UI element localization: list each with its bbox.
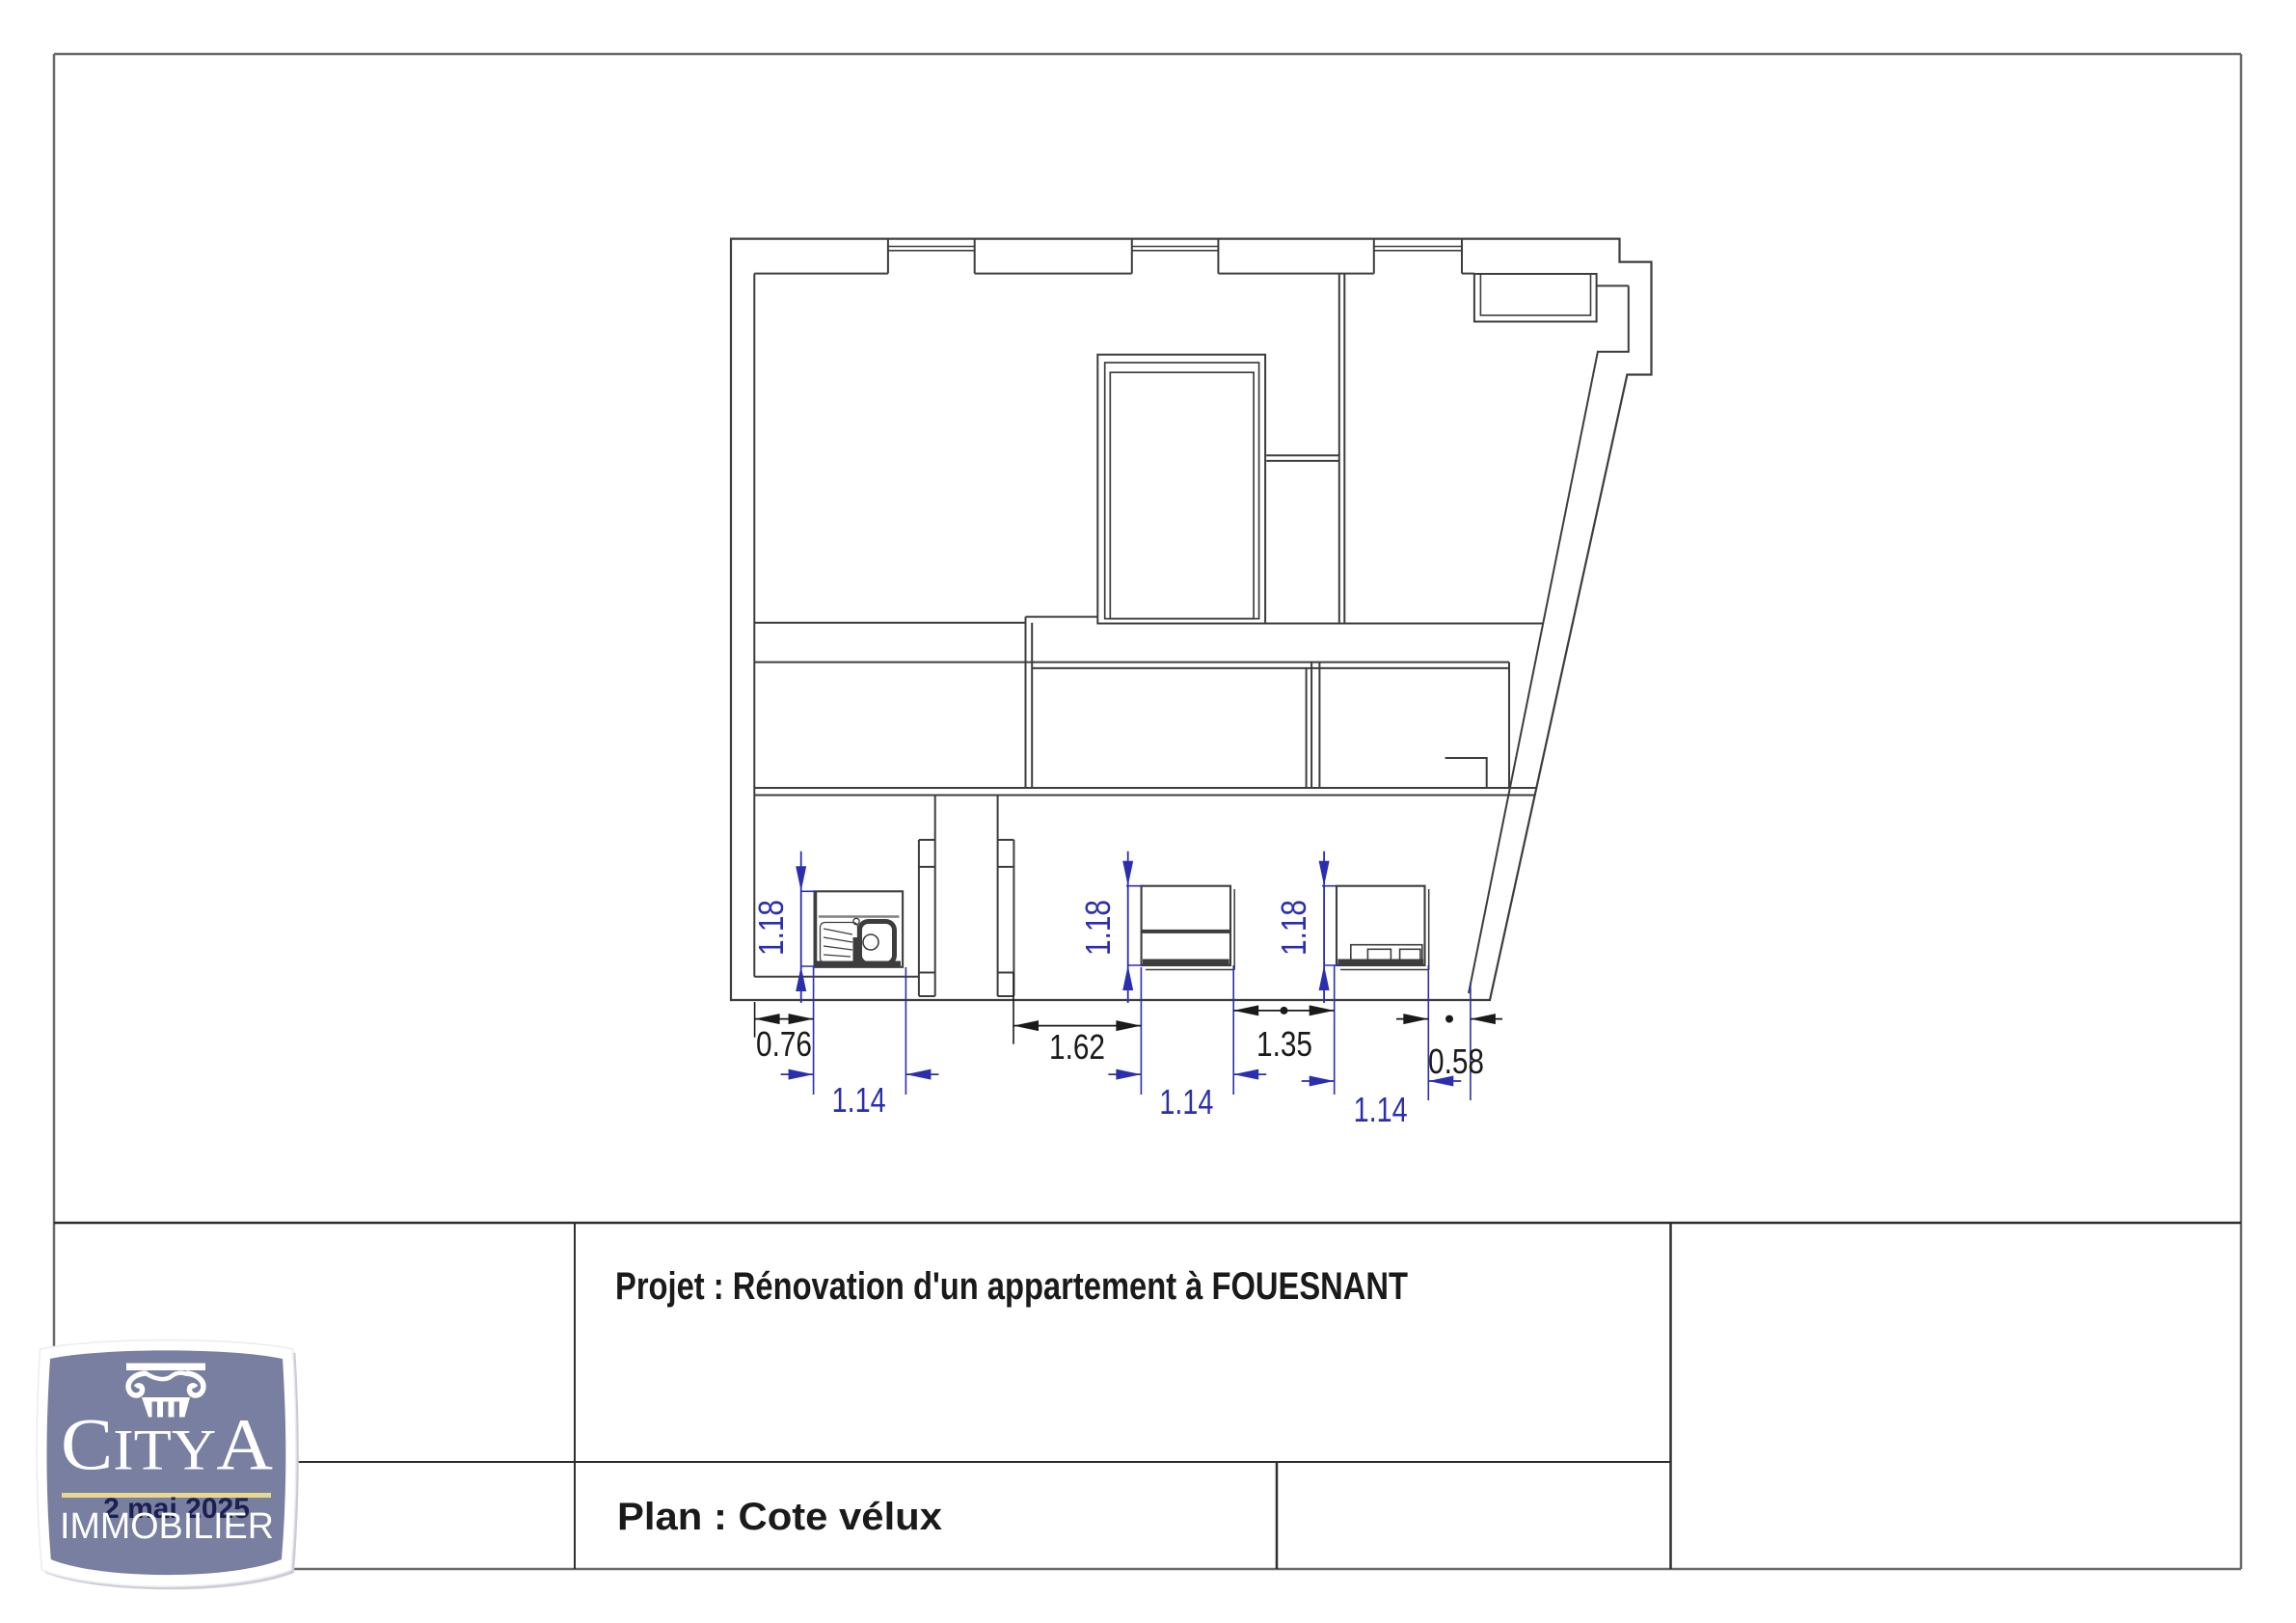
svg-text:1.18: 1.18: [1274, 900, 1313, 956]
svg-text:1.14: 1.14: [832, 1080, 886, 1120]
svg-text:1.14: 1.14: [1354, 1090, 1408, 1129]
svg-text:0.76: 0.76: [756, 1024, 812, 1064]
svg-text:1.14: 1.14: [1159, 1082, 1213, 1122]
svg-text:0.58: 0.58: [1428, 1041, 1484, 1081]
svg-text:1.35: 1.35: [1256, 1024, 1312, 1064]
svg-text:Projet : Rénovation d'un appar: Projet : Rénovation d'un appartement à F…: [615, 1265, 1408, 1308]
svg-text:1.62: 1.62: [1049, 1027, 1105, 1067]
svg-text:1.18: 1.18: [1078, 900, 1118, 956]
svg-text:IMMOBILIER: IMMOBILIER: [60, 1506, 274, 1547]
svg-text:Plan : Cote vélux: Plan : Cote vélux: [617, 1496, 942, 1538]
svg-text:1.18: 1.18: [751, 900, 791, 956]
